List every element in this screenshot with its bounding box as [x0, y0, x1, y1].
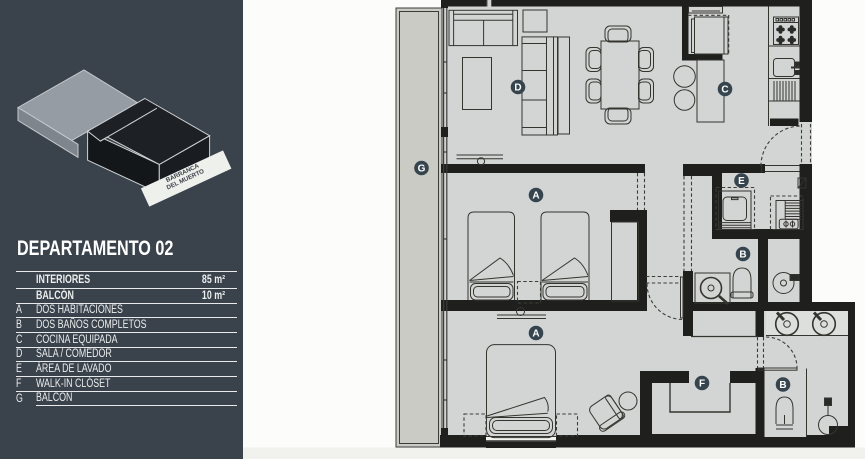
svg-text:G: G — [418, 164, 426, 175]
svg-text:A: A — [532, 191, 539, 202]
svg-text:D: D — [514, 83, 521, 94]
svg-text:B: B — [779, 380, 786, 391]
svg-text:E: E — [738, 176, 745, 187]
svg-text:A: A — [532, 329, 539, 340]
svg-text:B: B — [739, 250, 746, 261]
svg-text:F: F — [699, 379, 705, 390]
svg-text:C: C — [721, 85, 728, 96]
